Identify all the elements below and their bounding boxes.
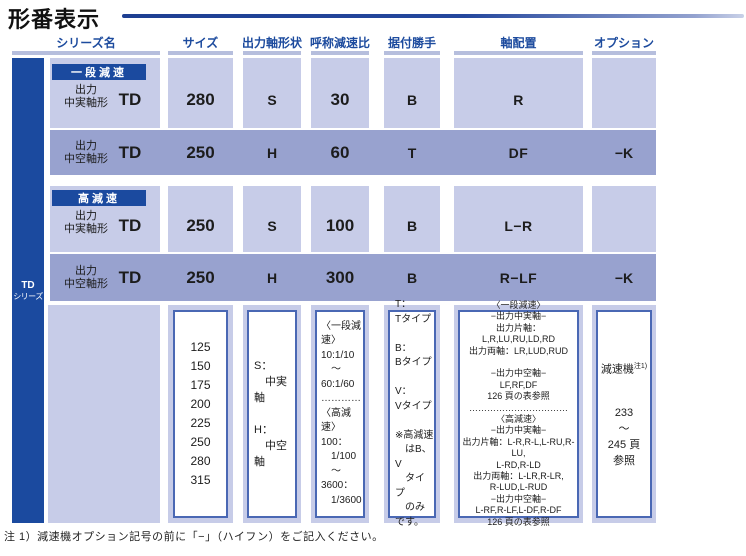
series-sidebar-label: TD シリーズ <box>12 280 44 302</box>
col-rule-size <box>168 51 233 55</box>
cell-arrangement: DF <box>454 130 583 175</box>
col-header-ratio: 呼称減速比 <box>304 34 376 50</box>
ratio-legend-text: 〈一段減速〉 10:1/10 〜 60:1/60 ………… 〈高減速〉 100：… <box>321 320 363 509</box>
col-header-size: サイズ <box>168 34 233 50</box>
catalog-page: 形番表示 シリーズ名 サイズ 出力軸形状 呼称減速比 据付勝手 軸配置 オプショ… <box>0 0 746 556</box>
ratio-legend-box: 〈一段減速〉 10:1/10 〜 60:1/60 ………… 〈高減速〉 100：… <box>315 310 365 518</box>
col-rule-shape <box>243 51 301 55</box>
cell-arrangement: L−R <box>454 186 583 252</box>
col-header-option: オプション <box>587 34 661 50</box>
size-options-list: 125 150 175 200 225 250 280 315 <box>190 338 210 490</box>
cell-mount: T <box>384 130 440 175</box>
title-rule <box>122 14 744 18</box>
footnote: 注 1）減速機オプション記号の前に「−」（ハイフン）をご記入ください。 <box>4 528 384 544</box>
mount-legend-text: T： Tタイプ B： Bタイプ V： Vタイプ ※高減速 はB、V タイプ のみ… <box>395 298 434 530</box>
series-name: TD <box>12 280 44 291</box>
table-row-solid-single: 一段減速 出力 中実軸形 TD 280 S 30 B R <box>50 58 656 128</box>
option-legend-title: 減速機注1) <box>601 359 647 378</box>
cell-option: −K <box>592 130 656 175</box>
legend-band-series <box>48 305 160 523</box>
cell-ratio: 30 <box>311 58 369 128</box>
table-row-solid-high: 高減速 出力 中実軸形 TD 250 S 100 B L−R <box>50 186 656 252</box>
table-row-hollow-single: 出力 中空軸形 TD 250 H 60 T DF −K <box>50 130 656 175</box>
col-header-arrangement: 軸配置 <box>454 34 583 50</box>
col-header-series: シリーズ名 <box>12 34 160 50</box>
arrangement-legend-text: 〈一段減速〉 −出力中実軸− 出力片軸：L,R,LU,RU,LD,RD 出力両軸… <box>460 300 577 528</box>
cell-series-code: TD <box>108 58 152 128</box>
cell-size: 250 <box>168 130 233 175</box>
cell-option <box>592 58 656 128</box>
cell-size: 250 <box>168 186 233 252</box>
cell-shape: S <box>243 186 301 252</box>
table-row-hollow-high: 出力 中空軸形 TD 250 H 300 B R−LF −K <box>50 254 656 301</box>
shape-legend-box: S： 中実軸 H： 中空軸 <box>247 310 297 518</box>
col-rule-arrangement <box>454 51 583 55</box>
cell-mount: B <box>384 58 440 128</box>
cell-shape: S <box>243 58 301 128</box>
size-options-box: 125 150 175 200 225 250 280 315 <box>173 310 228 518</box>
footnote-ref: 注1) <box>634 363 647 370</box>
shape-legend-text: S： 中実軸 H： 中空軸 <box>254 358 295 470</box>
col-header-shape: 出力軸形状 <box>236 34 308 50</box>
option-legend-box: 減速機注1) 233 〜 245 頁 参照 <box>596 310 652 518</box>
col-header-mount: 据付勝手 <box>377 34 447 50</box>
cell-ratio: 60 <box>311 130 369 175</box>
arrangement-legend-box: 〈一段減速〉 −出力中実軸− 出力片軸：L,R,LU,RU,LD,RD 出力両軸… <box>458 310 579 518</box>
page-title: 形番表示 <box>8 2 100 34</box>
cell-size: 280 <box>168 58 233 128</box>
cell-arrangement: R <box>454 58 583 128</box>
cell-ratio: 100 <box>311 186 369 252</box>
cell-series-code: TD <box>108 130 152 175</box>
cell-option <box>592 186 656 252</box>
cell-series-code: TD <box>108 254 152 301</box>
cell-size: 250 <box>168 254 233 301</box>
cell-series-code: TD <box>108 186 152 252</box>
col-rule-mount <box>384 51 440 55</box>
series-suffix: シリーズ <box>12 291 44 302</box>
cell-arrangement: R−LF <box>454 254 583 301</box>
mount-legend-box: T： Tタイプ B： Bタイプ V： Vタイプ ※高減速 はB、V タイプ のみ… <box>388 310 436 518</box>
cell-mount: B <box>384 186 440 252</box>
cell-shape: H <box>243 130 301 175</box>
cell-mount: B <box>384 254 440 301</box>
option-legend-pages: 233 〜 245 頁 参照 <box>608 405 640 469</box>
cell-ratio: 300 <box>311 254 369 301</box>
cell-option: −K <box>592 254 656 301</box>
col-rule-ratio <box>311 51 369 55</box>
col-rule-series <box>12 51 160 55</box>
cell-shape: H <box>243 254 301 301</box>
col-rule-option <box>592 51 656 55</box>
